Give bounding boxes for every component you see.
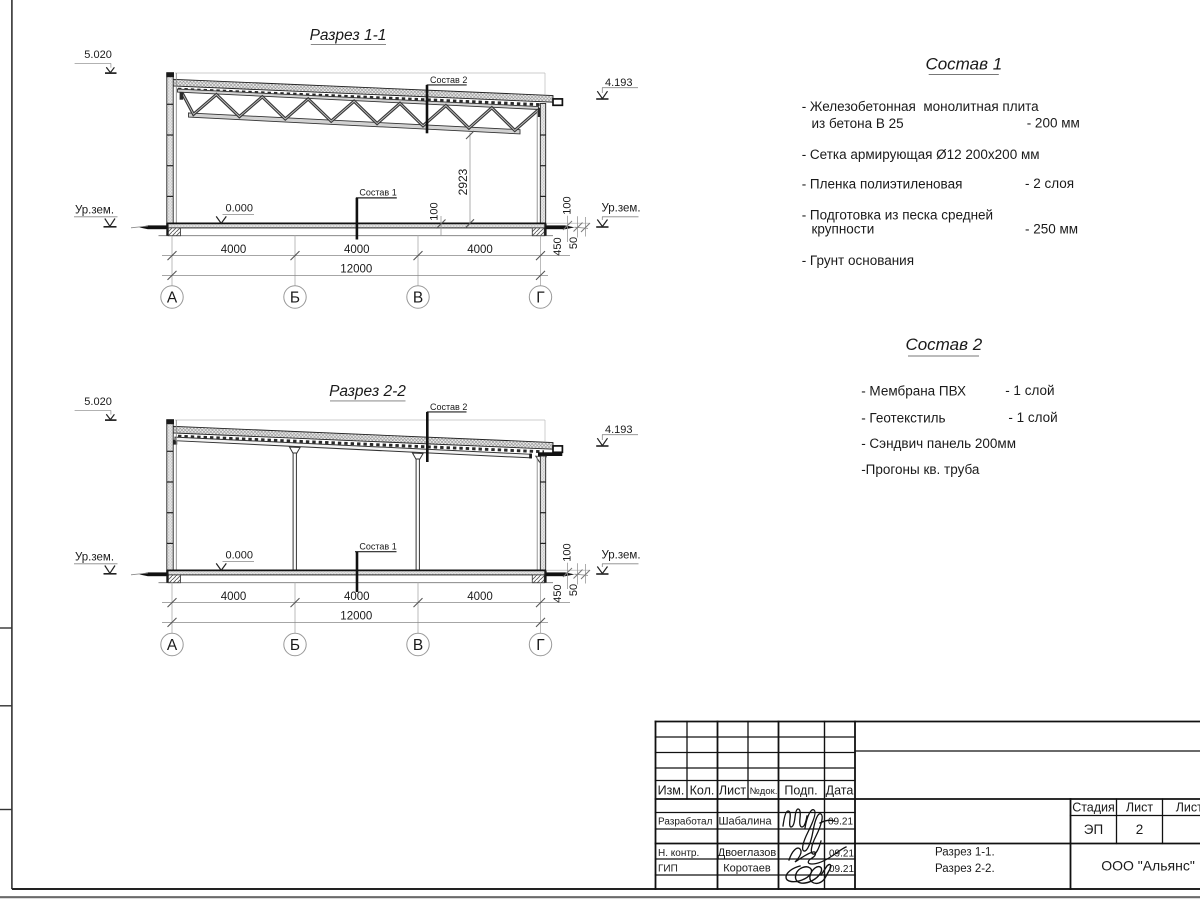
svg-text:- Сэндвич панель 200мм: - Сэндвич панель 200мм — [861, 436, 1016, 451]
svg-text:из бетона В 25: из бетона В 25 — [812, 116, 904, 131]
svg-text:50: 50 — [568, 584, 580, 596]
svg-text:Б: Б — [290, 289, 300, 306]
svg-text:4000: 4000 — [467, 244, 493, 256]
svg-text:ГИП: ГИП — [658, 864, 678, 875]
svg-text:4.193: 4.193 — [605, 424, 633, 436]
svg-text:Ур.зем.: Ур.зем. — [75, 205, 114, 217]
svg-text:5.020: 5.020 — [84, 396, 112, 408]
svg-text:Лист: Лист — [719, 784, 746, 798]
svg-text:100: 100 — [429, 202, 441, 220]
svg-text:50: 50 — [568, 237, 580, 249]
svg-text:100: 100 — [562, 543, 574, 561]
svg-text:Состав 1: Состав 1 — [359, 541, 396, 551]
svg-text:- 1 слой: - 1 слой — [1005, 383, 1054, 398]
svg-text:В: В — [413, 289, 423, 306]
svg-text:Состав 2: Состав 2 — [905, 335, 982, 354]
svg-text:450: 450 — [552, 237, 564, 255]
svg-text:-Прогоны кв. труба: -Прогоны кв. труба — [861, 462, 980, 477]
svg-text:- Мембрана ПВХ: - Мембрана ПВХ — [861, 384, 966, 399]
svg-text:Коротаев: Коротаев — [723, 863, 771, 875]
svg-text:- Пленка полиэтиленовая: - Пленка полиэтиленовая — [802, 177, 963, 192]
svg-text:- 2 слоя: - 2 слоя — [1025, 176, 1074, 191]
svg-text:- 250 мм: - 250 мм — [1025, 221, 1078, 236]
svg-text:Состав 1: Состав 1 — [925, 55, 1002, 74]
svg-text:Н. контр.: Н. контр. — [658, 848, 699, 859]
svg-text:Шабалина: Шабалина — [718, 816, 772, 828]
svg-text:Ур.зем.: Ур.зем. — [75, 552, 114, 564]
svg-text:ЭП: ЭП — [1084, 822, 1103, 837]
svg-text:09.21: 09.21 — [828, 817, 853, 828]
svg-text:- Сетка армирующая Ø12 200х200: - Сетка армирующая Ø12 200х200 мм — [802, 147, 1040, 162]
svg-text:Состав 1: Состав 1 — [359, 187, 396, 197]
svg-text:4000: 4000 — [344, 244, 370, 256]
svg-text:5.020: 5.020 — [84, 49, 112, 61]
svg-text:ООО "Альянс": ООО "Альянс" — [1101, 858, 1195, 874]
svg-text:2: 2 — [1136, 822, 1144, 837]
svg-text:4.193: 4.193 — [605, 77, 633, 89]
svg-text:Разрез 2-2.: Разрез 2-2. — [935, 863, 995, 875]
svg-text:0.000: 0.000 — [226, 550, 254, 562]
svg-text:Г: Г — [536, 637, 545, 654]
svg-text:Листов: Листов — [1176, 801, 1200, 815]
svg-text:Состав 2: Состав 2 — [430, 75, 467, 85]
svg-text:крупности: крупности — [812, 222, 875, 237]
svg-text:А: А — [167, 289, 178, 306]
svg-text:12000: 12000 — [340, 264, 372, 276]
svg-text:0.000: 0.000 — [226, 203, 254, 215]
svg-text:№док.: №док. — [750, 786, 778, 797]
svg-text:4000: 4000 — [467, 591, 493, 603]
svg-text:Разработал: Разработал — [658, 816, 713, 828]
svg-text:Дата: Дата — [826, 784, 854, 798]
svg-text:Стадия: Стадия — [1072, 801, 1115, 815]
svg-text:4000: 4000 — [344, 591, 370, 603]
svg-text:09.21: 09.21 — [829, 864, 854, 875]
svg-text:- Геотекстиль: - Геотекстиль — [861, 411, 945, 426]
svg-text:А: А — [167, 637, 178, 654]
svg-text:- Грунт основания: - Грунт основания — [802, 253, 914, 268]
svg-text:Кол.: Кол. — [690, 784, 715, 798]
svg-text:12000: 12000 — [340, 611, 372, 623]
svg-text:Разрез 2-2: Разрез 2-2 — [329, 383, 406, 400]
svg-text:Ур.зем.: Ур.зем. — [602, 203, 641, 215]
svg-text:- Железобетонная монолитная п: - Железобетонная монолитная плита — [802, 99, 1039, 114]
svg-text:450: 450 — [552, 584, 564, 602]
svg-text:Б: Б — [290, 637, 300, 654]
svg-text:4000: 4000 — [221, 244, 247, 256]
svg-text:В: В — [413, 637, 423, 654]
svg-text:Разрез 1-1.: Разрез 1-1. — [935, 847, 995, 859]
svg-text:- 1 слой: - 1 слой — [1008, 410, 1057, 425]
svg-text:Изм.: Изм. — [658, 784, 685, 798]
svg-text:Ур.зем.: Ур.зем. — [602, 550, 641, 562]
svg-text:- Подготовка из песка средней: - Подготовка из песка средней — [802, 207, 993, 222]
svg-text:100: 100 — [562, 196, 574, 214]
svg-text:09.21: 09.21 — [829, 849, 854, 860]
svg-text:4000: 4000 — [221, 591, 247, 603]
svg-text:Лист: Лист — [1126, 801, 1153, 815]
svg-text:- 200 мм: - 200 мм — [1027, 116, 1080, 131]
svg-text:Подп.: Подп. — [784, 784, 817, 798]
svg-text:Г: Г — [536, 289, 545, 306]
svg-text:Состав 2: Состав 2 — [430, 402, 467, 412]
svg-text:Двоеглазов: Двоеглазов — [718, 847, 777, 859]
svg-text:2923: 2923 — [456, 168, 470, 195]
svg-text:Разрез 1-1: Разрез 1-1 — [310, 27, 387, 44]
